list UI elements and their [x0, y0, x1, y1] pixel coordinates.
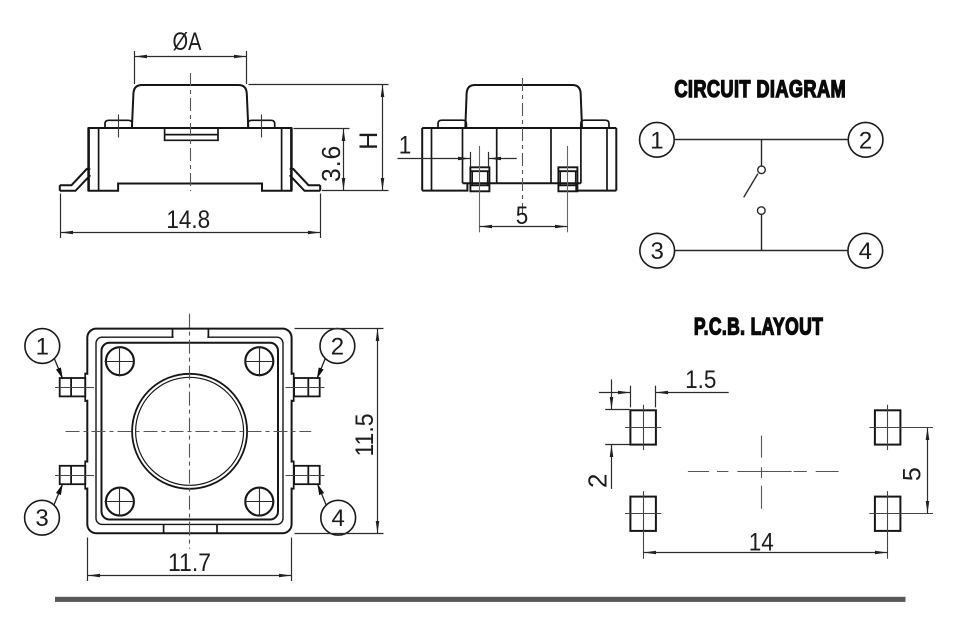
svg-text:2: 2: [859, 127, 872, 154]
svg-text:1: 1: [399, 131, 412, 159]
svg-text:ØA: ØA: [173, 28, 203, 56]
svg-text:11.7: 11.7: [168, 549, 211, 577]
svg-text:1: 1: [650, 127, 663, 154]
svg-text:14: 14: [749, 528, 774, 556]
svg-text:2: 2: [331, 334, 344, 361]
svg-text:CIRCUIT DIAGRAM: CIRCUIT DIAGRAM: [674, 76, 846, 103]
svg-text:11.5: 11.5: [351, 413, 379, 456]
svg-text:H: H: [355, 132, 383, 150]
svg-text:1.5: 1.5: [685, 366, 716, 394]
svg-text:4: 4: [859, 238, 872, 265]
svg-text:2: 2: [582, 474, 612, 488]
svg-text:5: 5: [516, 202, 529, 230]
svg-text:3.6: 3.6: [317, 145, 346, 182]
svg-text:4: 4: [332, 505, 345, 532]
svg-text:5: 5: [898, 467, 926, 481]
svg-text:3: 3: [35, 505, 48, 532]
svg-text:14.8: 14.8: [166, 206, 210, 234]
svg-text:P.C.B. LAYOUT: P.C.B. LAYOUT: [694, 314, 823, 340]
svg-text:3: 3: [651, 238, 664, 265]
svg-text:1: 1: [36, 334, 49, 361]
